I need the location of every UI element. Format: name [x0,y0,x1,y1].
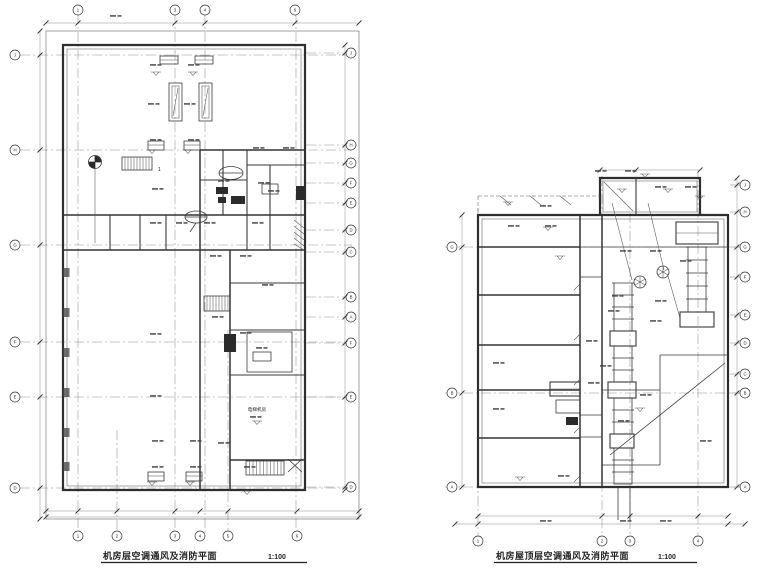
hatched-stair-flight [294,220,304,250]
annotation-text-mark [540,205,546,207]
grid-bubble-label: H [349,143,352,148]
annotation-text-mark [160,188,164,190]
duct-segments [686,247,708,312]
interior-walls [478,215,602,487]
annotation-text-mark [545,225,551,227]
annotation-text-mark [620,295,624,297]
annotation-text-mark [204,222,210,224]
annotation-text-mark [152,188,158,190]
elevation-mark [183,150,193,154]
door-swings [574,284,580,482]
exterior-wall [63,45,305,490]
annotation-text-mark [685,186,691,188]
elevation-mark [147,150,157,154]
annotation-text-mark [620,520,626,522]
plan-outer-frame [46,31,359,519]
annotation-text-mark [248,255,252,257]
annotation-text-mark [176,222,182,224]
elevation-mark [543,227,553,231]
annotation-text-mark [655,300,661,302]
equipment-blocks [550,382,580,425]
duct-run-center [612,283,634,484]
annotation-text-mark [212,316,218,318]
annotation-text-mark [158,333,162,335]
grid-bubble-label: D [13,486,16,491]
annotation-text-mark [493,362,499,364]
annotation-text-mark [620,250,626,252]
annotation-text-mark [608,365,612,367]
drawing-sheet: 1 [0,0,760,578]
roof-edge-louvers [478,182,633,215]
elevation-mark [555,256,565,260]
room-label: 电梯机房 [248,406,267,413]
annotation-text-mark [152,440,158,442]
annotation-text-mark [588,382,594,384]
right-floor-plan [445,170,745,536]
annotation-text-mark [603,170,607,172]
duct-segments [612,283,634,331]
annotation-text-mark [220,316,224,318]
annotation-text-mark [118,15,122,17]
annotation-text-mark [708,440,712,442]
grid-bubble-label: H [743,210,746,215]
annotation-text-mark [633,170,637,172]
annotation-text-mark [250,416,256,418]
stair-upper: 1 [122,157,161,173]
annotation-text-mark [261,147,265,149]
grid-bubble-label: F [350,341,353,346]
annotation-text-mark [595,170,601,172]
annotation-text-mark [276,190,280,192]
duct-segments [612,448,634,484]
duct-stub-below [618,487,630,520]
double-door-symbol [288,459,302,472]
grid-bubble-label: D [743,341,746,346]
annotation-text-mark [283,147,289,149]
annotation-text-mark [244,466,250,468]
annotation-text-mark [626,420,630,422]
annotation-text-mark [260,222,264,224]
grid-bubble-label: A [744,485,747,490]
annotation-text-mark [553,225,557,227]
elevation-mark [617,189,627,193]
annotation-text-mark [256,347,262,349]
annotation-text-mark [501,408,505,410]
elevation-mark [185,482,195,486]
annotation-text-mark [196,139,200,141]
grid-bubble-label: J [744,183,746,188]
annotation-text-mark [264,347,268,349]
left-floor-plan: 1 [20,14,359,534]
annotation-text-mark [663,300,667,302]
annotation-text-mark [700,440,706,442]
annotation-text-mark [548,205,552,207]
annotation-text-mark [596,382,600,384]
annotation-text-mark [158,395,162,397]
annotation-text-mark [516,225,520,227]
wall-grilles [148,56,213,481]
annotation-text-mark [160,466,164,468]
wall-pilasters [64,268,70,471]
stair-treads [207,296,228,311]
annotation-text-mark [618,420,624,422]
annotation-text-mark [628,250,632,252]
annotation-text-mark [218,255,222,257]
annotation-text-mark [640,394,646,396]
annotation-text-mark [252,222,258,224]
annotation-text-mark [616,310,620,312]
annotation-text-mark [192,103,196,105]
grid-bubble-label: F [14,340,17,345]
grid-bubble-label: E [744,313,747,318]
grid-bubble-label: C [743,372,746,377]
elevation-mark [151,72,161,76]
annotation-text-mark [158,222,162,224]
right-plan-scale: 1:100 [658,554,676,561]
exterior-wall [478,178,728,487]
annotation-text-mark [212,222,216,224]
annotation-text-mark [158,64,162,66]
annotation-text-mark [226,180,230,182]
grid-bubble-label: D [349,485,352,490]
annotation-text-mark [693,186,697,188]
annotation-text-mark [594,340,598,342]
left-plan-title: 机房层空调通风及消防平面 [103,550,217,561]
annotation-text-mark [658,250,662,252]
annotation-text-mark [160,440,164,442]
annotation-text-mark [188,139,194,141]
annotation-text-mark [150,139,156,141]
grid-bubble-label: A [350,315,353,320]
annotation-text-mark [650,320,656,322]
annotation-text-mark [558,475,564,477]
annotation-text-mark [148,103,154,105]
annotation-text-mark [252,466,256,468]
annotation-text-mark [566,475,570,477]
annotation-text-mark [150,333,156,335]
elevation-mark [515,477,525,481]
annotation-text-mark [190,466,196,468]
annotation-text-mark [184,222,188,224]
right-plan-title: 机房屋顶层空调通风及消防平面 [496,550,629,561]
grid-bubble-label: A [451,485,454,490]
annotation-text-mark [110,15,116,17]
annotation-text-mark [508,225,514,227]
interior-walls [63,150,305,490]
annotation-text-mark [660,520,666,522]
annotation-text-mark [218,442,224,444]
duct-segments [612,346,634,382]
grid-bubble-label: E [350,395,353,400]
annotation-text-mark [625,170,631,172]
title-block-left: 机房层空调通风及消防平面 1:100 [101,550,307,563]
annotation-text-mark [663,186,667,188]
grid-bubble-label: H [13,148,16,153]
benchmark-symbol [89,156,102,244]
annotation-text-mark [628,520,632,522]
grid-bubble-label: E [14,395,17,400]
leader-lines [612,203,680,318]
grid-bubble-label: C [349,250,352,255]
dimension-lines [455,170,745,524]
annotation-text-mark [688,260,692,262]
exterior-wall-inner-line [67,49,301,486]
grid-bubble-label: E [350,201,353,206]
duct-shafts [169,83,212,121]
annotation-text-mark [650,250,656,252]
annotation-text-mark [493,408,499,410]
elevation-mark [663,189,673,193]
annotation-text-mark [501,362,505,364]
annotation-text-mark [218,180,224,182]
annotation-text-mark [150,222,156,224]
annotation-text-mark [198,466,202,468]
annotation-text-mark [188,64,194,66]
ahu-unit [676,222,718,244]
grid-bubble-label: F [350,181,353,186]
annotation-text-mark [658,320,662,322]
elevation-mark [635,408,645,412]
stair-treads [250,461,282,475]
annotation-text-mark [258,416,262,418]
elevation-mark [147,482,157,486]
annotation-text-mark [586,340,592,342]
stair-middle [204,296,230,311]
left-plan-scale: 1:100 [268,554,286,561]
duct-plenum-right [680,312,714,327]
stair-number: 1 [158,167,161,173]
annotation-text-mark [240,332,246,334]
annotation-text-mark [240,255,246,257]
grid-bubble-label: D [349,228,352,233]
grid-lines [445,172,742,536]
duct-riser-right [686,247,708,312]
annotation-text-mark [248,332,252,334]
annotation-text-mark [210,255,216,257]
grid-bubble-label: B [350,295,353,300]
grid-bubble-label: F [744,275,747,280]
annotation-text-mark [184,103,190,105]
annotation-text-mark [291,147,295,149]
annotation-text-mark [198,440,202,442]
grid-bubble-label: B [744,391,747,396]
annotation-text-mark [253,147,259,149]
drawing-canvas: 1 [0,0,760,578]
annotation-text-mark [258,182,264,184]
grid-bubble-label: J [350,51,352,56]
annotation-text-mark [158,139,162,141]
annotation-text-mark [548,520,552,522]
annotation-text-mark [226,442,230,444]
annotation-text-mark [266,182,270,184]
annotation-text-mark [268,190,274,192]
annotation-text-mark [152,466,158,468]
elevation-mark [242,491,252,495]
grid-bubble-label: J [14,53,16,58]
annotation-text-mark [655,186,661,188]
annotation-text-mark [540,520,546,522]
annotation-text-mark [196,64,200,66]
annotation-text-mark [270,284,274,286]
annotation-text-mark [262,284,268,286]
annotation-text-mark [608,310,614,312]
annotation-text-mark [190,440,196,442]
annotation-text-mark [612,295,618,297]
stair-treads [125,157,149,170]
title-block-right: 机房屋顶层空调通风及消防平面 1:100 [494,550,697,563]
annotation-text-mark [150,64,156,66]
grid-bubble-label: B [451,391,454,396]
elevation-mark [252,421,262,425]
annotation-text-mark [680,260,686,262]
annotation-text-mark [648,394,652,396]
elevation-mark [188,72,198,76]
duct-segments [612,398,634,434]
annotation-text-mark [156,103,160,105]
grid-lines [20,14,352,534]
annotation-text-mark [150,395,156,397]
annotation-text-mark [668,520,672,522]
annotation-text-mark [600,365,606,367]
right-plan-annotations: 1234GBAJHGFEDCBA [447,168,750,547]
